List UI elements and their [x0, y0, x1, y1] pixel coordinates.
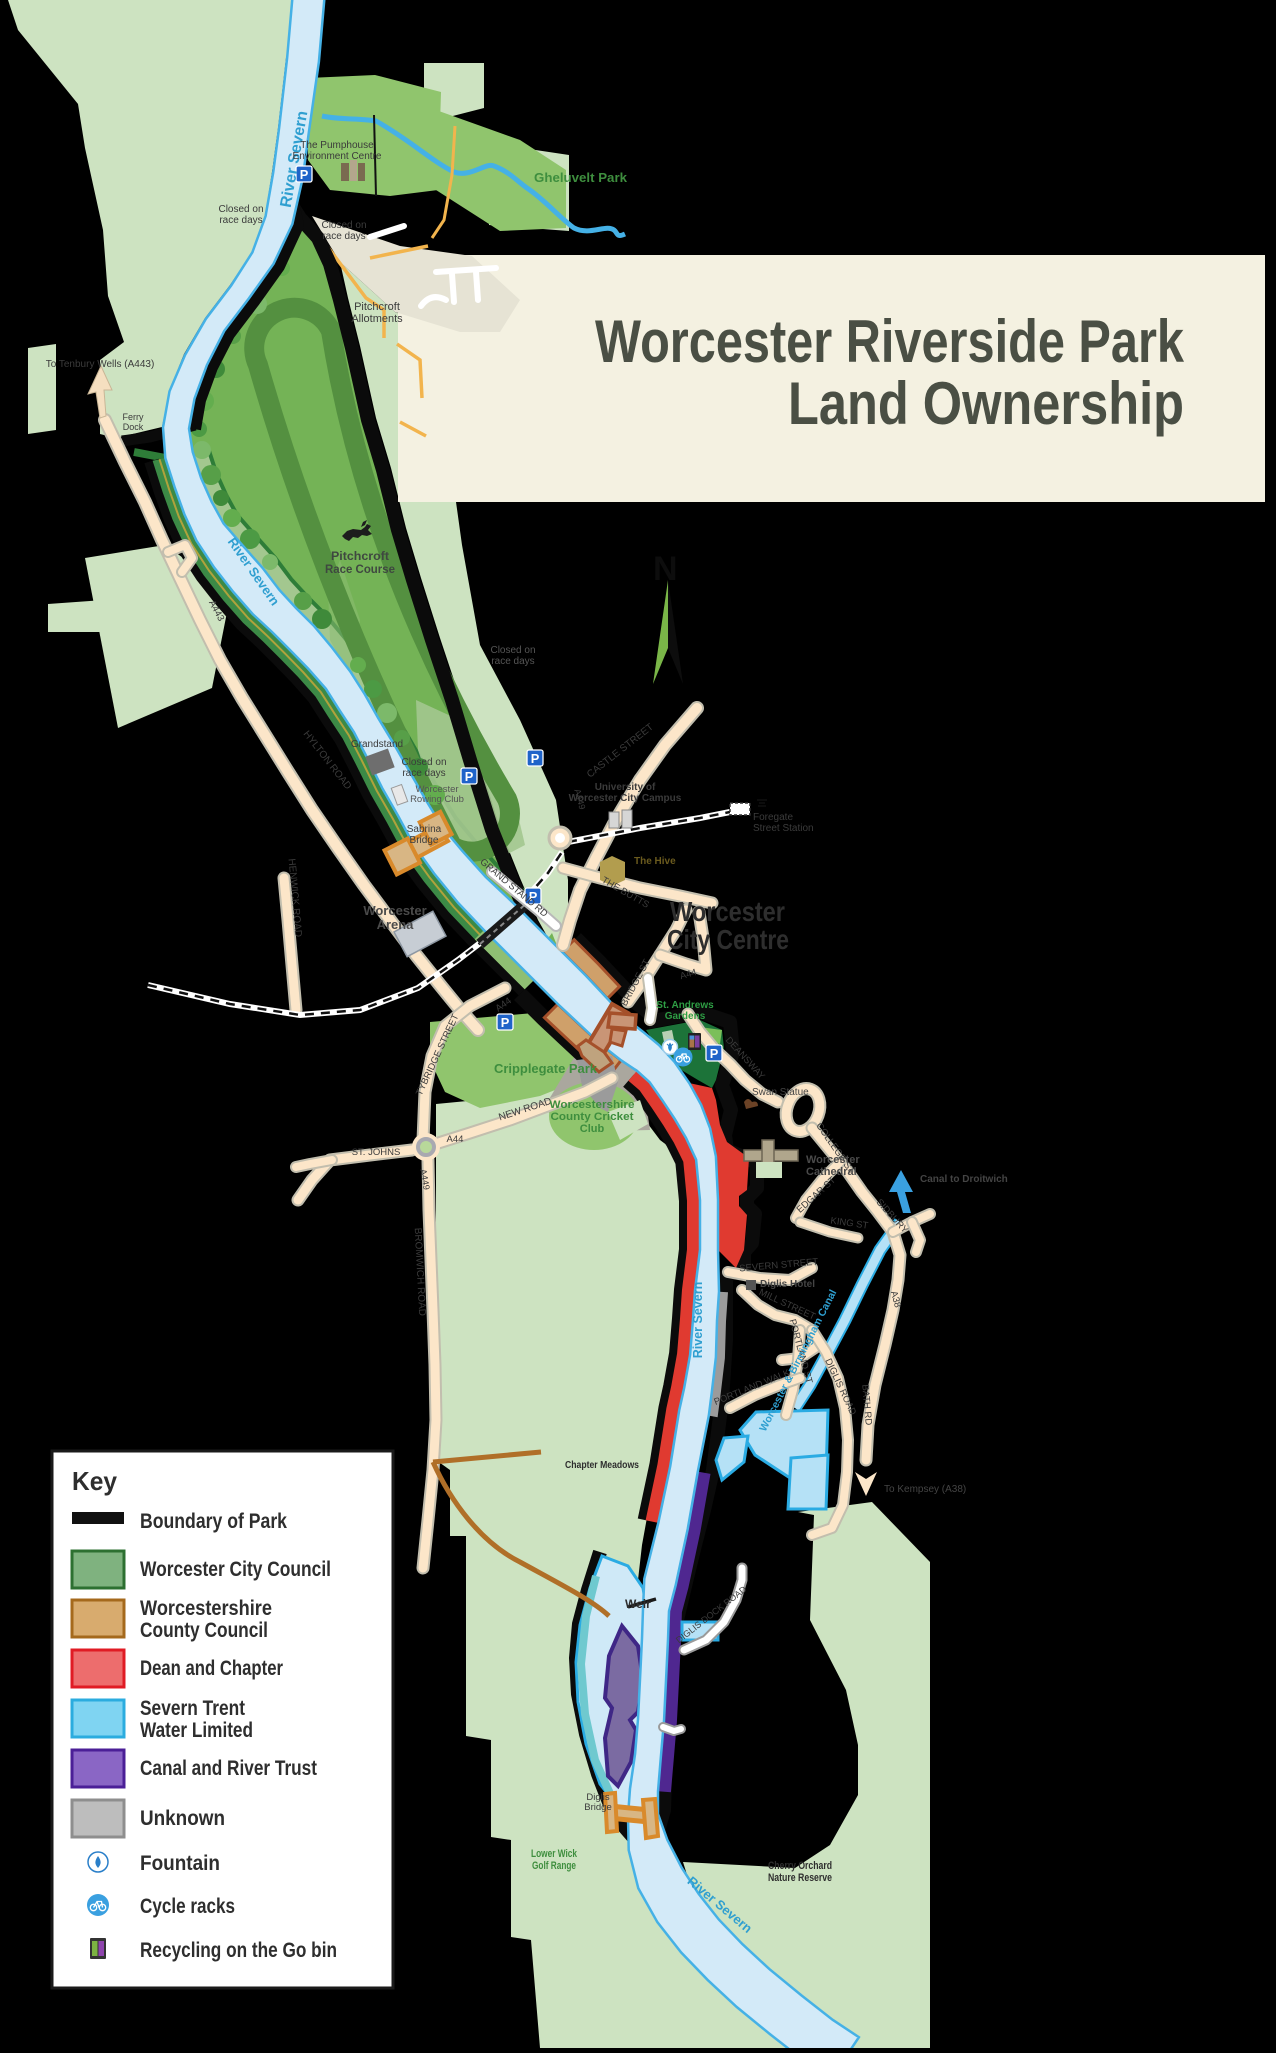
svg-text:County Cricket: County Cricket — [551, 1111, 634, 1123]
svg-text:Street Station: Street Station — [753, 823, 814, 834]
svg-text:To Tenbury Wells (A443): To Tenbury Wells (A443) — [46, 359, 155, 370]
svg-text:Pitchcroft: Pitchcroft — [331, 549, 389, 563]
svg-text:St. Andrews: St. Andrews — [656, 1000, 714, 1011]
svg-text:Gardens: Gardens — [665, 1011, 706, 1022]
svg-text:Lower Wick: Lower Wick — [531, 1848, 578, 1860]
svg-text:Weir: Weir — [625, 1597, 651, 1611]
svg-text:Environment Centre: Environment Centre — [293, 151, 382, 162]
svg-text:Race Course: Race Course — [325, 562, 395, 576]
svg-text:Cherry Orchard: Cherry Orchard — [768, 1860, 832, 1872]
svg-text:Arena: Arena — [377, 917, 415, 932]
svg-text:Land Ownership: Land Ownership — [788, 370, 1184, 437]
svg-text:Golf Range: Golf Range — [532, 1860, 576, 1872]
svg-text:ST. JOHNS: ST. JOHNS — [352, 1147, 401, 1158]
svg-text:N: N — [653, 550, 678, 588]
svg-text:P: P — [465, 769, 474, 784]
svg-text:P: P — [501, 1015, 510, 1030]
svg-text:The Pumphouse: The Pumphouse — [300, 140, 374, 151]
svg-text:Key: Key — [72, 1466, 118, 1496]
svg-text:Severn Trent: Severn Trent — [140, 1697, 245, 1720]
svg-text:Closed on: Closed on — [321, 220, 366, 231]
svg-text:Worcester City Campus: Worcester City Campus — [569, 793, 682, 804]
svg-text:Bridge: Bridge — [584, 1802, 611, 1813]
svg-text:Closed on: Closed on — [218, 204, 263, 215]
svg-text:Worcester Riverside Park: Worcester Riverside Park — [595, 308, 1185, 375]
svg-text:Diglis Hotel: Diglis Hotel — [760, 1279, 815, 1290]
svg-text:race days: race days — [322, 231, 365, 242]
svg-text:Worcestershire: Worcestershire — [550, 1099, 635, 1111]
svg-text:Unknown: Unknown — [140, 1807, 225, 1830]
svg-text:Boundary of Park: Boundary of Park — [140, 1510, 287, 1533]
svg-text:race days: race days — [402, 768, 445, 779]
svg-text:Cycle racks: Cycle racks — [140, 1895, 235, 1918]
svg-text:Cripplegate Park: Cripplegate Park — [494, 1061, 598, 1076]
svg-text:University of: University of — [595, 782, 656, 793]
svg-text:Foregate: Foregate — [753, 812, 793, 823]
svg-text:Water Limited: Water Limited — [140, 1719, 253, 1742]
svg-text:Worcester: Worcester — [363, 903, 426, 918]
svg-text:To Kempsey (A38): To Kempsey (A38) — [884, 1484, 966, 1495]
svg-text:Pitchcroft: Pitchcroft — [354, 301, 400, 313]
svg-text:Bridge: Bridge — [410, 835, 439, 846]
svg-text:River Severn: River Severn — [691, 1282, 705, 1358]
svg-text:Worcester City Council: Worcester City Council — [140, 1558, 331, 1581]
svg-text:Worcester: Worcester — [670, 896, 785, 927]
svg-text:Sabrina: Sabrina — [407, 824, 442, 835]
svg-text:Fountain: Fountain — [140, 1852, 220, 1875]
svg-text:Canal and River Trust: Canal and River Trust — [140, 1757, 317, 1780]
svg-text:Allotments: Allotments — [351, 313, 403, 325]
svg-text:Closed on: Closed on — [490, 645, 535, 656]
svg-text:race days: race days — [491, 656, 534, 667]
svg-text:Recycling on the Go bin: Recycling on the Go bin — [140, 1939, 337, 1962]
svg-text:Dean and Chapter: Dean and Chapter — [140, 1657, 283, 1680]
svg-text:Canal to Droitwich: Canal to Droitwich — [920, 1174, 1008, 1185]
svg-text:Worcestershire: Worcestershire — [140, 1597, 272, 1620]
svg-text:Grandstand: Grandstand — [351, 739, 403, 750]
svg-text:City Centre: City Centre — [667, 924, 789, 955]
svg-text:Gheluvelt Park: Gheluvelt Park — [534, 170, 628, 185]
svg-text:Club: Club — [580, 1123, 605, 1135]
svg-text:Dock: Dock — [123, 422, 144, 432]
svg-text:Nature Reserve: Nature Reserve — [768, 1872, 832, 1884]
svg-text:Ferry: Ferry — [123, 412, 144, 422]
svg-text:A44: A44 — [447, 1134, 464, 1145]
svg-text:The Hive: The Hive — [634, 856, 676, 867]
svg-text:P: P — [531, 751, 540, 766]
svg-text:Closed on: Closed on — [401, 757, 446, 768]
svg-text:race days: race days — [219, 215, 262, 226]
svg-text:P: P — [710, 1046, 719, 1061]
svg-text:Worcester: Worcester — [806, 1154, 860, 1166]
svg-text:Chapter Meadows: Chapter Meadows — [565, 1459, 639, 1471]
svg-text:Swan Statue: Swan Statue — [752, 1087, 809, 1098]
svg-text:Rowing Club: Rowing Club — [410, 794, 464, 805]
svg-text:County Council: County Council — [140, 1619, 268, 1642]
